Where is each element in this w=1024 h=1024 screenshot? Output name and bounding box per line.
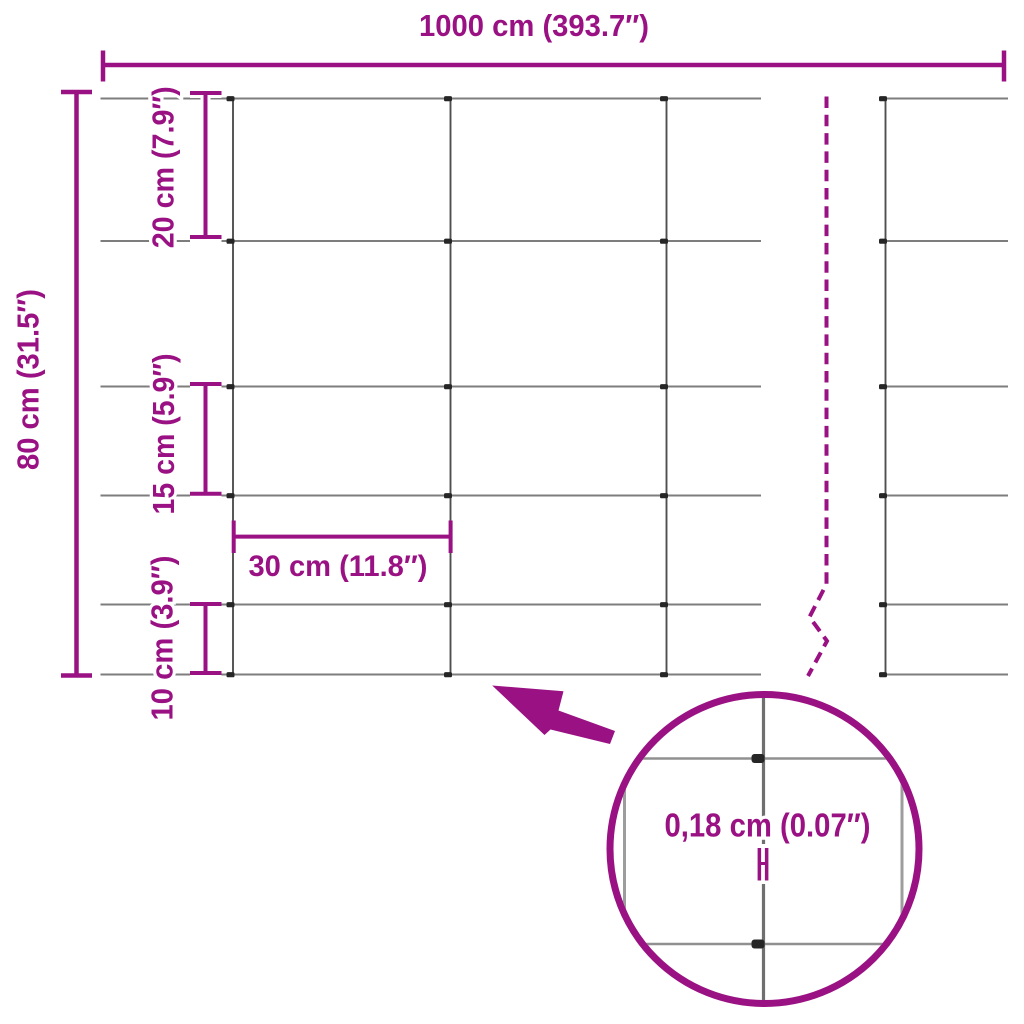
svg-text:80 cm (31.5″): 80 cm (31.5″) xyxy=(11,289,46,470)
svg-text:10 cm (3.9″): 10 cm (3.9″) xyxy=(144,556,179,721)
svg-text:20 cm (7.9″): 20 cm (7.9″) xyxy=(146,86,181,248)
svg-text:30 cm (11.8″): 30 cm (11.8″) xyxy=(249,550,428,583)
svg-text:0,18 cm (0.07″): 0,18 cm (0.07″) xyxy=(665,807,871,844)
svg-text:1000 cm (393.7″): 1000 cm (393.7″) xyxy=(419,8,649,43)
svg-text:15 cm (5.9″): 15 cm (5.9″) xyxy=(146,354,181,515)
